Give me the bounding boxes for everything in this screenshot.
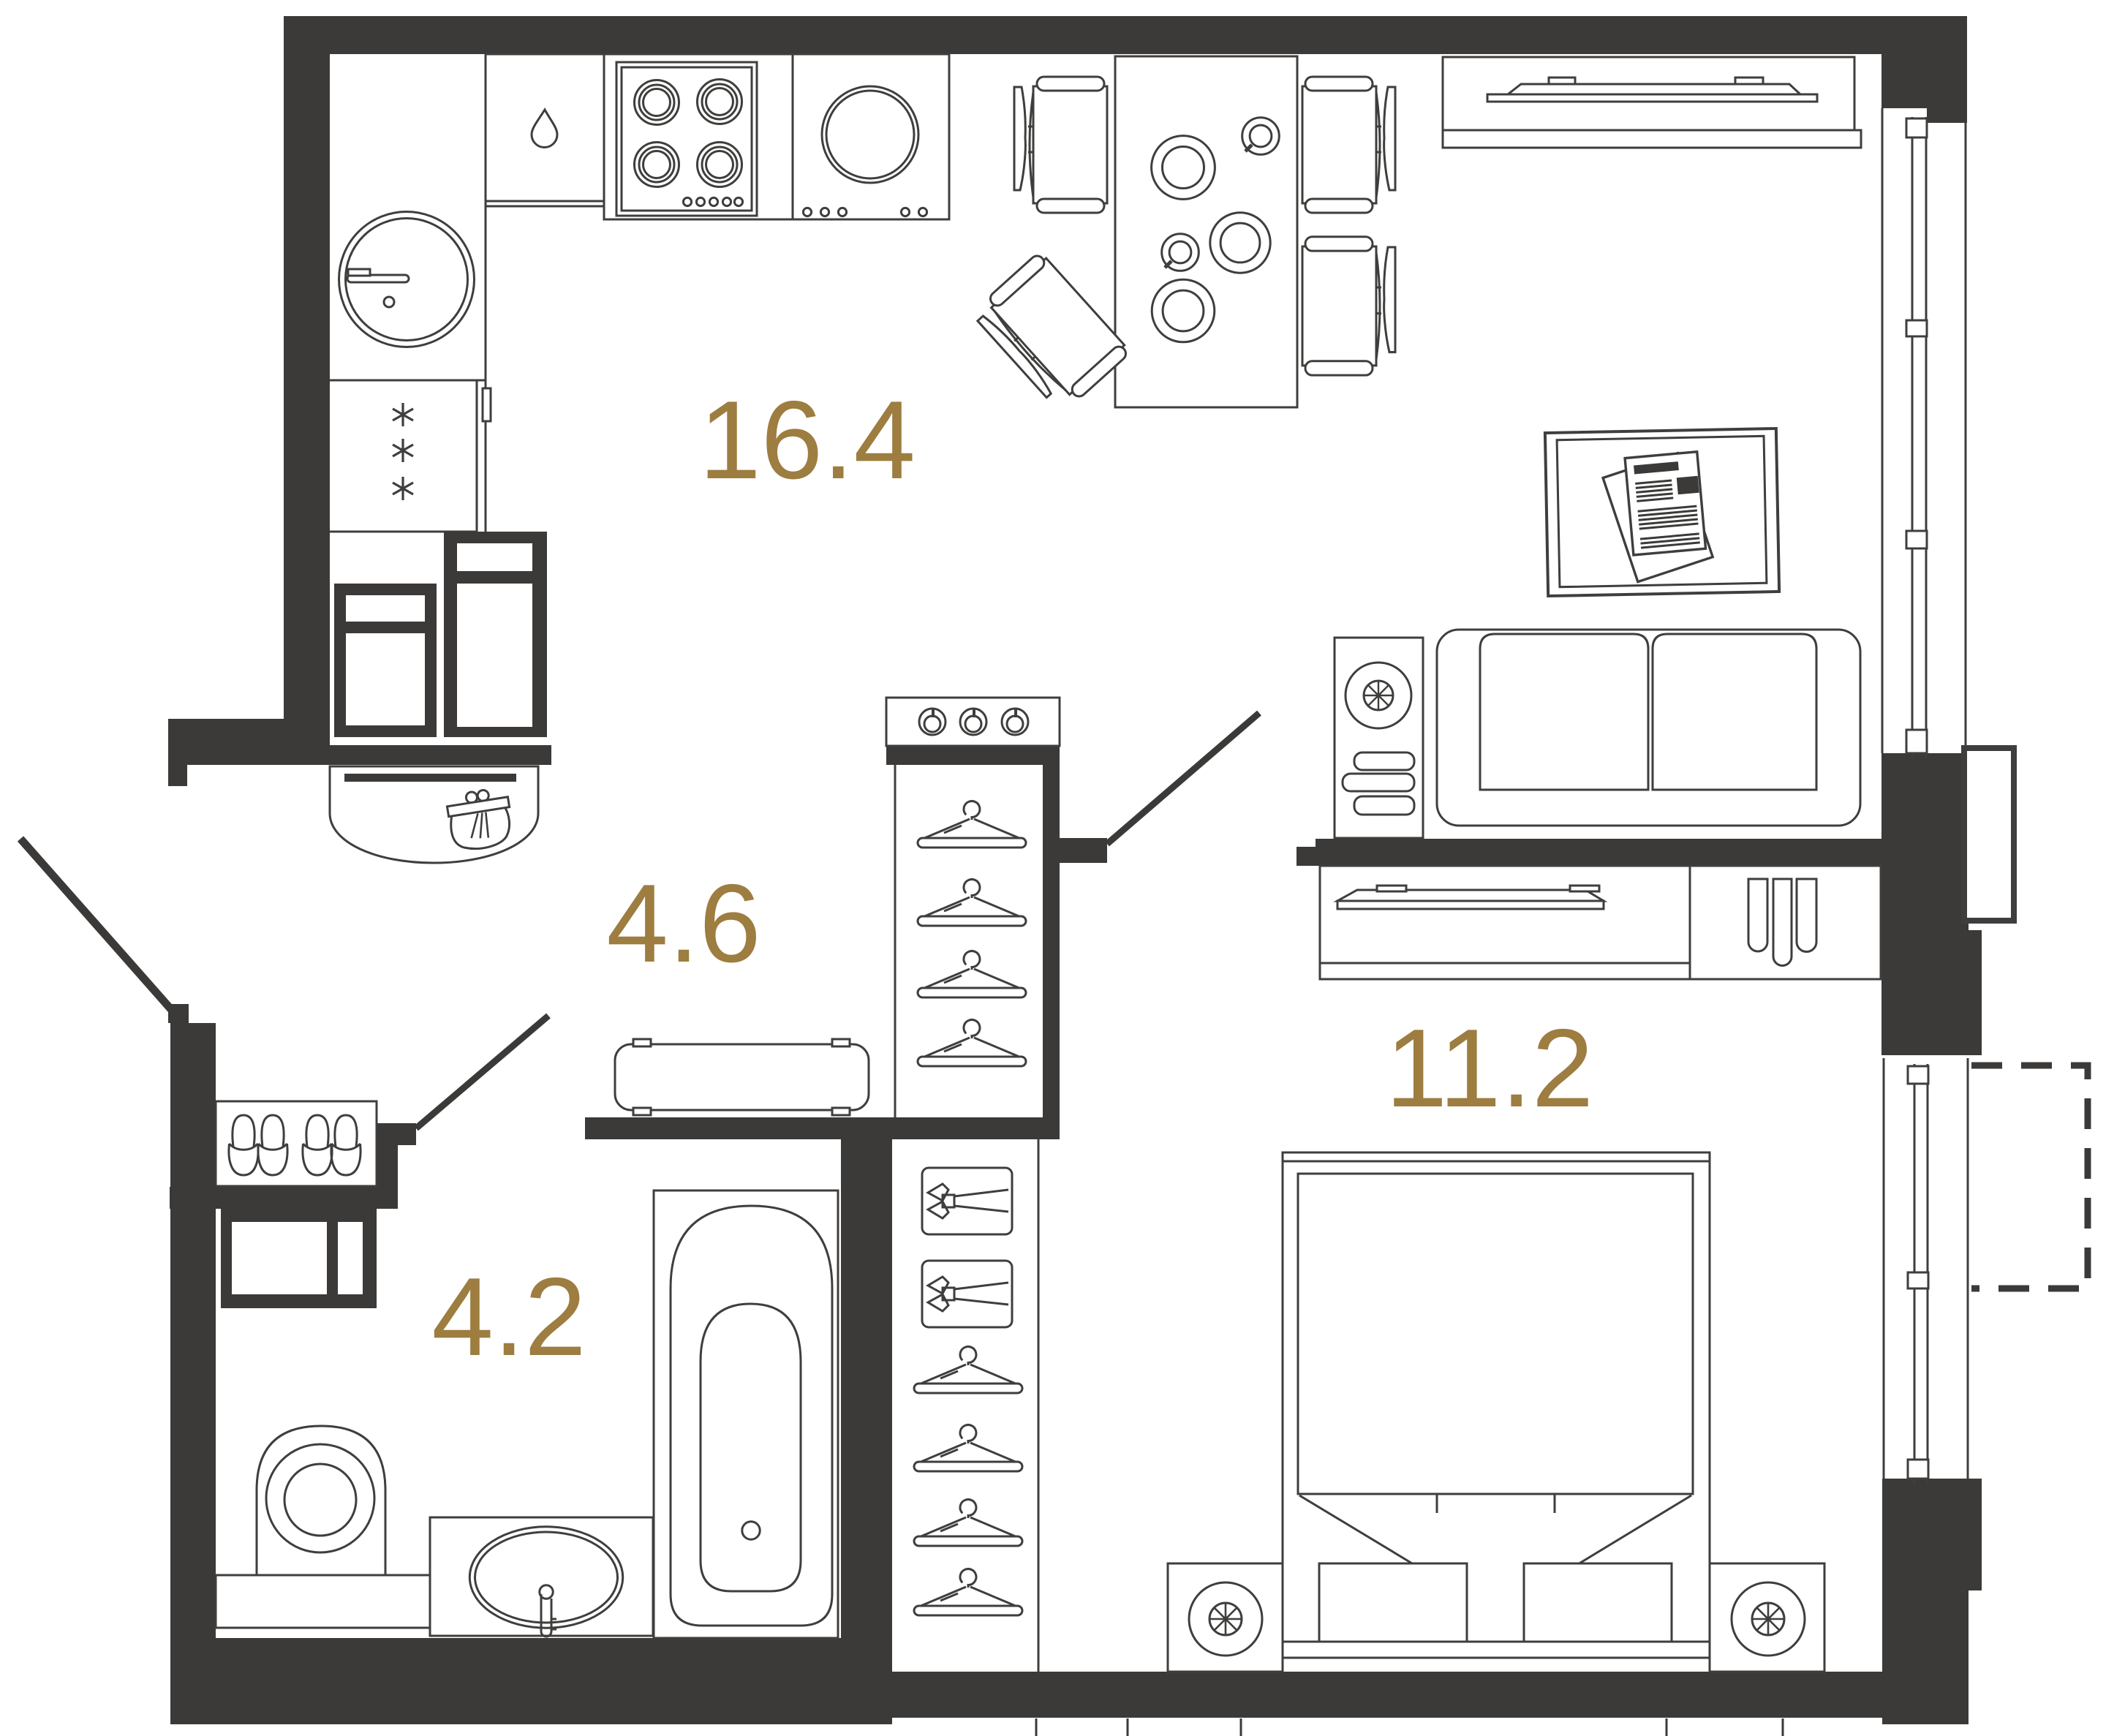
svg-text:4.6: 4.6	[606, 861, 760, 986]
svg-text:4.2: 4.2	[431, 1255, 586, 1379]
svg-text:11.2: 11.2	[1386, 1006, 1594, 1131]
svg-text:16.4: 16.4	[699, 378, 916, 502]
